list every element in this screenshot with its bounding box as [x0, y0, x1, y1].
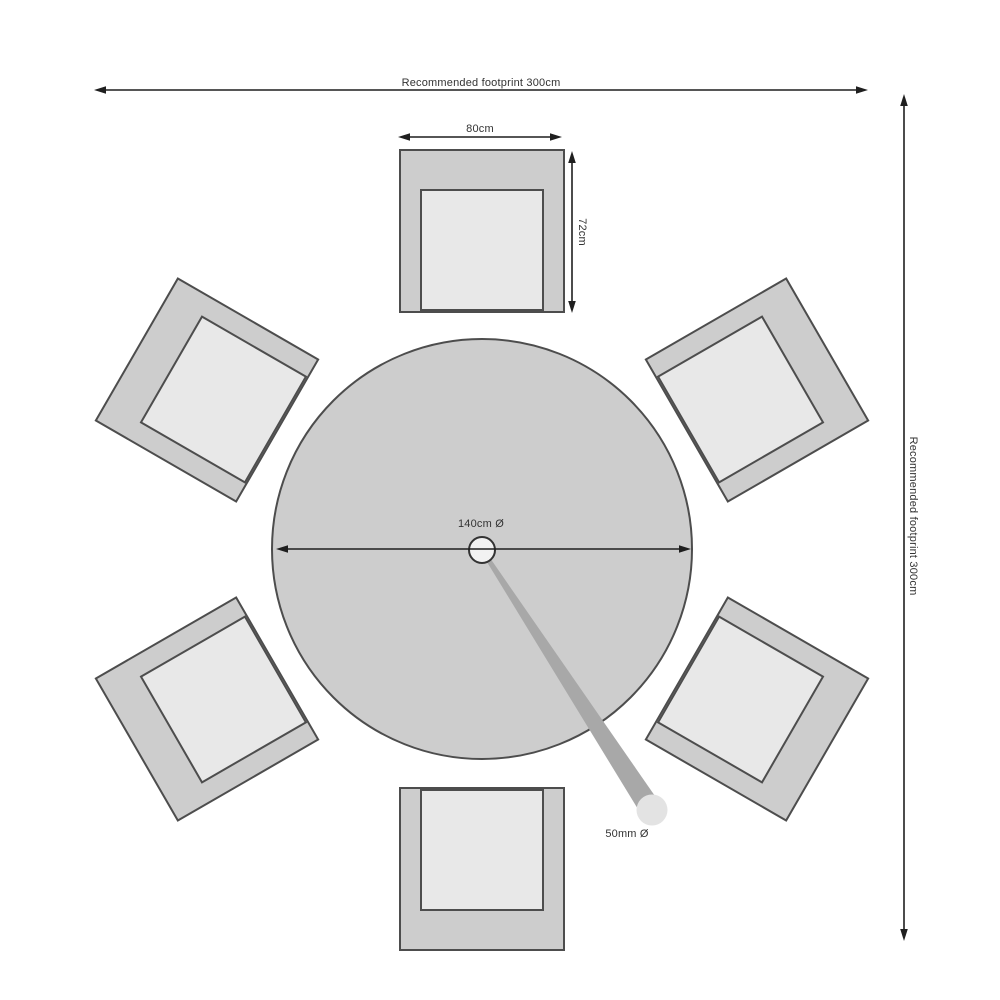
chair-top: [400, 150, 564, 312]
arrowhead-up-icon: [900, 94, 908, 106]
arrowhead-down-icon: [900, 929, 908, 941]
arrowhead-up-icon: [568, 151, 576, 163]
chair-seat: [421, 190, 543, 310]
parasol-pole-end: [637, 795, 668, 826]
label-footprint-vertical: Recommended footprint 300cm: [907, 437, 919, 596]
label-chair-width: 80cm: [466, 123, 494, 135]
label-footprint-horizontal: Recommended footprint 300cm: [402, 77, 561, 89]
chair-seat: [421, 790, 543, 910]
dimension-arrow-footprint-vertical: [900, 94, 908, 941]
dimension-arrow-chair-depth: [568, 151, 576, 313]
chair-lower-left: [96, 597, 318, 820]
arrowhead-left-icon: [398, 133, 410, 141]
footprint-diagram-canvas: Recommended footprint 300cm Recommended …: [0, 0, 1000, 1000]
arrowhead-right-icon: [856, 86, 868, 94]
footprint-diagram: Recommended footprint 300cm Recommended …: [0, 0, 1000, 1000]
chair-lower-right: [646, 597, 868, 820]
parasol-hole: [469, 537, 495, 563]
arrowhead-right-icon: [550, 133, 562, 141]
chair-bottom: [400, 788, 564, 950]
arrowhead-left-icon: [94, 86, 106, 94]
chair-upper-left: [96, 278, 318, 501]
label-table-diameter: 140cm Ø: [458, 518, 504, 530]
arrowhead-down-icon: [568, 301, 576, 313]
chair-upper-right: [646, 278, 868, 501]
label-pole-diameter: 50mm Ø: [605, 828, 649, 840]
label-chair-depth: 72cm: [576, 218, 588, 246]
